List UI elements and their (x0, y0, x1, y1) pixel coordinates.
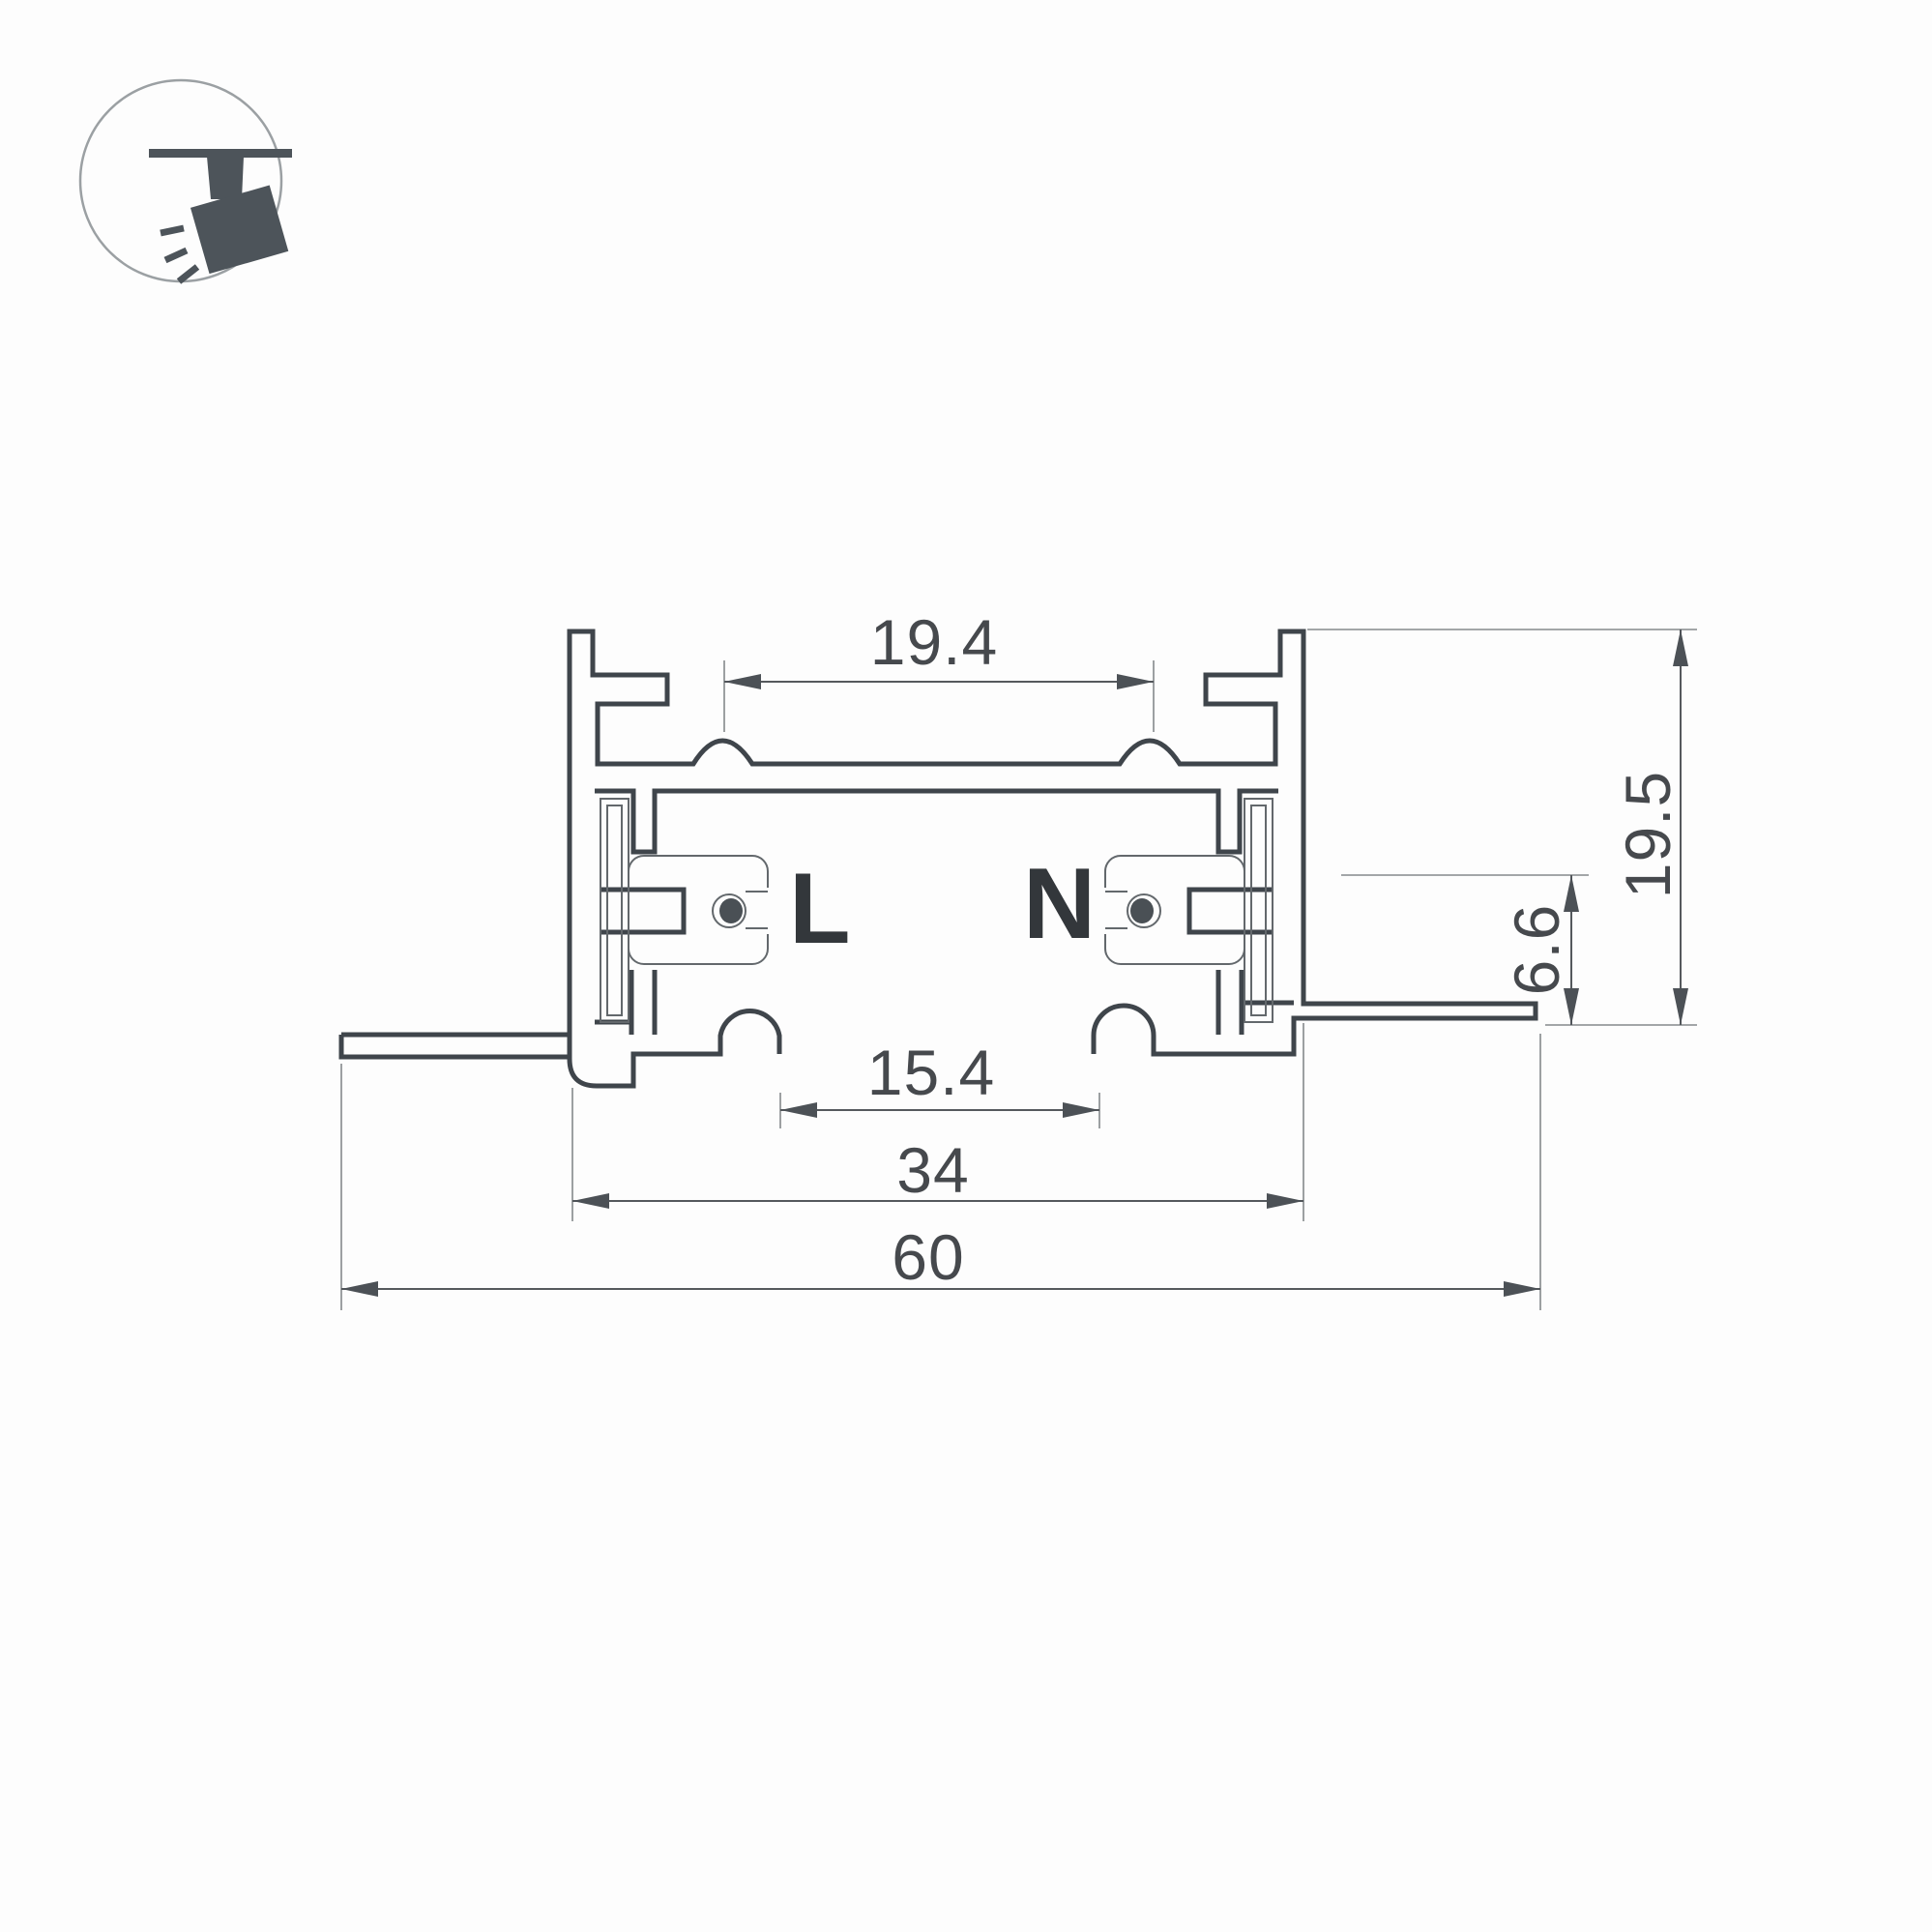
live-conductor-label: L (789, 853, 851, 965)
arrow-left-icon (724, 674, 761, 689)
arrow-right-icon (1117, 674, 1154, 689)
dimension-bottom-opening-width: 15.4 (780, 1037, 1099, 1128)
profile-left-flange (341, 1011, 779, 1086)
profile-brackets (600, 890, 1273, 932)
arrow-down-icon (1673, 988, 1688, 1025)
arrow-right-icon (1267, 1193, 1303, 1209)
icon-ceiling-bar (149, 149, 292, 158)
right-conductor-dot (1130, 898, 1154, 923)
profile-body (341, 631, 1536, 1086)
arrow-left-icon (572, 1193, 609, 1209)
right-liner-outer (1244, 799, 1273, 1022)
arrow-left-icon (780, 1102, 817, 1118)
dimension-value: 6.6 (1501, 904, 1572, 996)
arrow-right-icon (1504, 1281, 1540, 1297)
arrow-right-icon (1063, 1102, 1099, 1118)
profile-outline (341, 631, 1536, 1054)
icon-track-stem (207, 157, 244, 199)
profile-roof-ribs (595, 791, 1278, 852)
right-liner-inner (1251, 805, 1266, 1015)
dimension-top-slot-width: 19.4 (724, 606, 1154, 732)
left-conductor-dot (719, 898, 743, 923)
technical-drawing: L N 19.4 15.4 34 60 19.5 (0, 0, 1932, 1932)
arrow-up-icon (1673, 629, 1688, 666)
dimension-value: 15.4 (867, 1037, 995, 1108)
right-housing-slot (1098, 888, 1127, 934)
profile-floor-segments (595, 1003, 1294, 1022)
left-liner-inner (607, 805, 622, 1015)
dimension-value: 60 (892, 1221, 964, 1293)
dimension-value: 19.4 (870, 606, 998, 678)
left-liner-outer (600, 799, 629, 1022)
dimension-value: 34 (896, 1134, 969, 1206)
dimension-value: 19.5 (1612, 771, 1683, 898)
left-housing-slot (746, 888, 775, 934)
neutral-conductor-label: N (1023, 848, 1096, 960)
arrow-left-icon (341, 1281, 378, 1297)
track-spotlight-icon (80, 80, 292, 281)
insulator-details (600, 799, 1273, 1022)
